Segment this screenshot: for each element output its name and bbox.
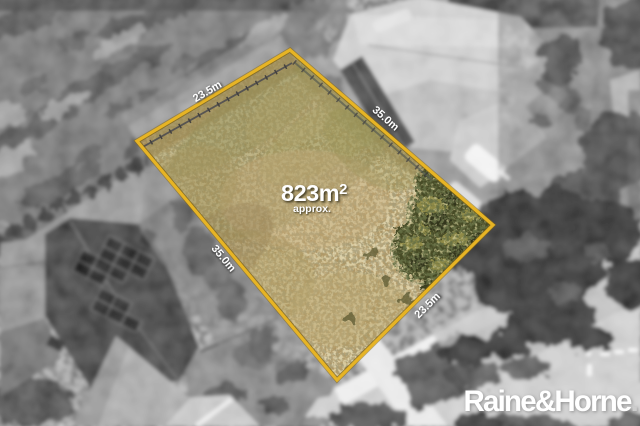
svg-text:approx.: approx. [293,203,331,215]
svg-text:Raine&Horne.: Raine&Horne. [464,385,638,418]
